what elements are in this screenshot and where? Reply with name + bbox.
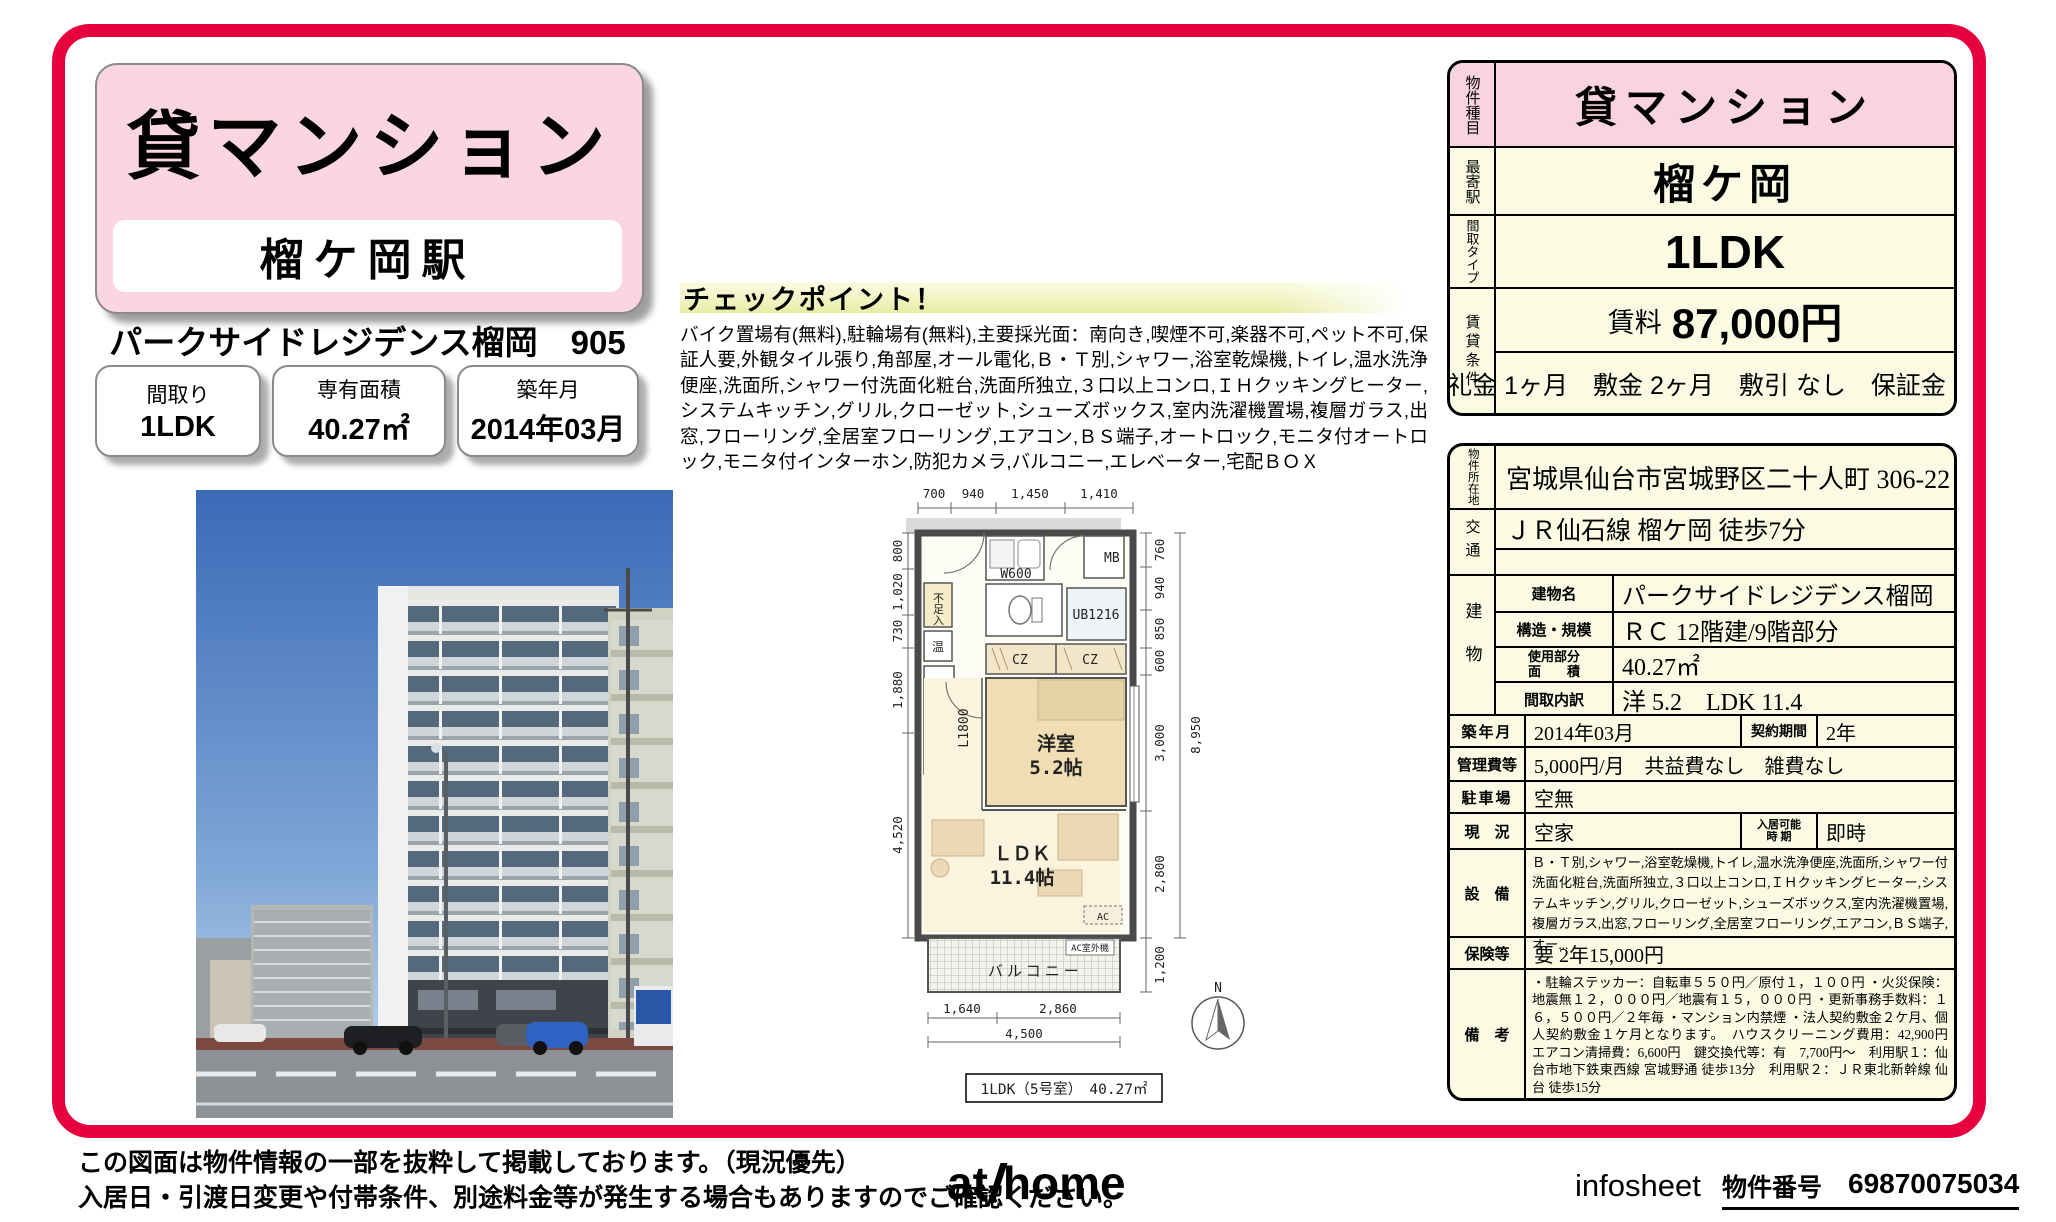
parking-value: 空無 (1526, 782, 1954, 812)
structure-label: 構造・規模 (1496, 613, 1614, 646)
summary-value: 40.27㎡ (308, 406, 410, 448)
notes-label: 備 考 (1450, 970, 1526, 1098)
svg-text:1,410: 1,410 (1080, 486, 1118, 501)
svg-text:760: 760 (1152, 539, 1167, 562)
contract-label: 契約期間 (1742, 716, 1818, 746)
building-name-label: 建物名 (1496, 576, 1614, 611)
summary-box-built: 築年月 2014年03月 (457, 365, 639, 457)
svg-text:CZ: CZ (1082, 653, 1098, 668)
notes-value: ・駐輪ステッカー：自転車５５０円／原付１，１００円 ・火災保険：地震無１２，００… (1526, 970, 1954, 1098)
station-box: 榴ケ岡駅 (113, 220, 622, 292)
svg-text:ＬＤＫ: ＬＤＫ (993, 843, 1050, 865)
nearest-station-label: 最寄駅 (1465, 159, 1480, 204)
status-value: 空家 (1526, 814, 1742, 848)
summary-label: 築年月 (517, 374, 580, 404)
access-label: 交通 (1465, 519, 1480, 565)
address-label: 物件所在地 (1466, 448, 1478, 506)
svg-text:800: 800 (890, 540, 905, 563)
svg-text:不足入: 不足入 (932, 593, 945, 626)
svg-text:1,450: 1,450 (1011, 486, 1049, 501)
svg-text:600: 600 (1152, 650, 1167, 673)
footer-disclaimer-1: この図面は物件情報の一部を抜粋して掲載しております。（現況優先） (78, 1143, 861, 1179)
property-type-label: 物件種目 (1465, 75, 1480, 135)
svg-text:温: 温 (932, 640, 944, 654)
svg-text:2,860: 2,860 (1039, 1001, 1077, 1016)
svg-text:1,640: 1,640 (943, 1001, 981, 1016)
insurance-label: 保険等 (1450, 938, 1526, 968)
svg-text:1,200: 1,200 (1152, 946, 1167, 984)
address-value: 宮城県仙台市宮城野区二十人町 306-22 (1496, 446, 1954, 508)
svg-text:700: 700 (923, 486, 946, 501)
svg-text:850: 850 (1152, 618, 1167, 641)
summary-value: 2014年03月 (471, 406, 626, 448)
svg-text:1,020: 1,020 (890, 573, 905, 611)
svg-text:8,950: 8,950 (1188, 716, 1203, 754)
floorplan: 700 940 1,450 1,410 (888, 478, 1284, 1134)
category-box: 貸マンション 榴ケ岡駅 (95, 63, 644, 314)
rent-value: 87,000円 (1672, 290, 1842, 351)
summary-box-area: 専有面積 40.27㎡ (272, 365, 446, 457)
svg-text:N: N (1214, 981, 1222, 996)
layout-detail-label: 間取内訳 (1496, 683, 1614, 716)
built-label: 築年月 (1450, 716, 1526, 746)
structure-value: ＲＣ 12階建/9階部分 (1614, 613, 1954, 646)
summary-box-layout: 間取り 1LDK (95, 365, 261, 457)
equipment-value: Ｂ・Ｔ別,シャワー,浴室乾燥機,トイレ,温水洗浄便座,洗面所,シャワー付洗面化粧… (1526, 850, 1954, 936)
svg-text:3,000: 3,000 (1152, 724, 1167, 762)
svg-text:940: 940 (962, 486, 985, 501)
checkpoint-body: バイク置場有(無料),駐輪場有(無料),主要採光面：南向き,喫煙不可,楽器不可,… (680, 322, 1428, 475)
nearest-station-value: 榴ケ岡 (1496, 148, 1954, 214)
detail-table: 物件所在地 宮城県仙台市宮城野区二十人町 306-22 交通 ＪＲ仙石線 榴ケ岡… (1447, 443, 1957, 1101)
access-line2 (1496, 548, 1954, 574)
checkpoint-band: チェックポイント！ (680, 282, 1408, 313)
row-label-cell: 建物 (1450, 576, 1496, 714)
svg-text:AC: AC (1097, 912, 1109, 923)
athome-logo: at home (947, 1156, 1126, 1210)
svg-text:UB1216: UB1216 (1073, 608, 1120, 623)
layout-type-label: 間取タイプ (1466, 219, 1479, 284)
contract-value: 2年 (1818, 716, 1954, 746)
building-name-value: パークサイドレジデンス榴岡 905 (1614, 576, 1954, 611)
row-label-cell: 最寄駅 (1450, 148, 1496, 214)
layout-detail-value: 洋 5.2 LDK 11.4 (1614, 683, 1954, 716)
checkpoint-title: チェックポイント！ (680, 278, 944, 317)
summary-label: 間取り (147, 379, 210, 409)
lease-terms-value: 礼金 1ヶ月 敷金 2ヶ月 敷引 なし 保証金 なし (1496, 351, 1954, 415)
fee-label: 管理費等 (1450, 748, 1526, 780)
movein-value: 即時 (1818, 814, 1954, 848)
property-number-label: 物件番号 (1722, 1168, 1822, 1204)
svg-text:洋室: 洋室 (1037, 732, 1075, 755)
built-value: 2014年03月 (1526, 716, 1742, 746)
row-label-cell: 物件種目 (1450, 63, 1496, 146)
property-type-value: 貸マンション (1496, 63, 1954, 146)
row-label-cell: 間取タイプ (1450, 216, 1496, 287)
svg-text:MB: MB (1104, 551, 1120, 566)
svg-text:4,500: 4,500 (1005, 1026, 1043, 1041)
equipment-label: 設 備 (1450, 850, 1526, 936)
used-area-label: 使用部分面 積 (1496, 648, 1614, 681)
used-area-value: 40.27㎡ (1614, 648, 1954, 681)
building-photo (196, 490, 673, 1118)
building-label: 建物 (1464, 602, 1481, 688)
property-number: 物件番号 69870075034 (1722, 1168, 2019, 1210)
svg-text:4,520: 4,520 (890, 816, 905, 854)
parking-label: 駐車場 (1450, 782, 1526, 812)
rent-label: 賃料 (1608, 301, 1662, 340)
row-label-cell: 物件所在地 (1450, 446, 1496, 508)
svg-text:5.2帖: 5.2帖 (1029, 756, 1082, 779)
svg-text:11.4帖: 11.4帖 (990, 866, 1055, 889)
movein-label: 入居可能時 期 (1742, 814, 1818, 848)
svg-text:CZ: CZ (1012, 653, 1028, 668)
summary-value: 1LDK (140, 411, 216, 444)
infosheet-label: infosheet (1575, 1168, 1701, 1204)
status-label: 現 況 (1450, 814, 1526, 848)
svg-text:バルコニー: バルコニー (988, 962, 1083, 980)
summary-label: 専有面積 (317, 374, 401, 404)
svg-text:1LDK（5号室） 40.27㎡: 1LDK（5号室） 40.27㎡ (980, 1081, 1148, 1098)
svg-text:1,880: 1,880 (890, 671, 905, 709)
fee-value: 5,000円/月 共益費なし 雑費なし (1526, 748, 1954, 780)
svg-text:L1800: L1800 (957, 708, 972, 747)
svg-text:AC室外機: AC室外機 (1071, 942, 1109, 954)
access-line1: ＪＲ仙石線 榴ケ岡 徒歩7分 (1496, 510, 1954, 548)
north-compass: N (1192, 981, 1244, 1049)
infosheet-page: 貸マンション 榴ケ岡駅 パークサイドレジデンス榴岡 905 間取り 1LDK 専… (0, 0, 2056, 1222)
insurance-value: 要 2年15,000円 (1526, 938, 1954, 968)
property-name: パークサイドレジデンス榴岡 905 (95, 316, 640, 364)
category-title: 貸マンション (97, 87, 642, 194)
svg-text:2,800: 2,800 (1152, 855, 1167, 893)
svg-text:W600: W600 (1000, 567, 1031, 582)
svg-text:940: 940 (1152, 577, 1167, 600)
property-number-value: 69870075034 (1848, 1168, 2019, 1204)
row-label-cell: 交通 (1450, 510, 1496, 574)
layout-type-value: 1LDK (1496, 216, 1954, 287)
summary-table: 物件種目 貸マンション 最寄駅 榴ケ岡 間取タイプ 1LDK 賃貸条件 賃料 8… (1447, 60, 1957, 416)
svg-text:730: 730 (890, 620, 905, 643)
